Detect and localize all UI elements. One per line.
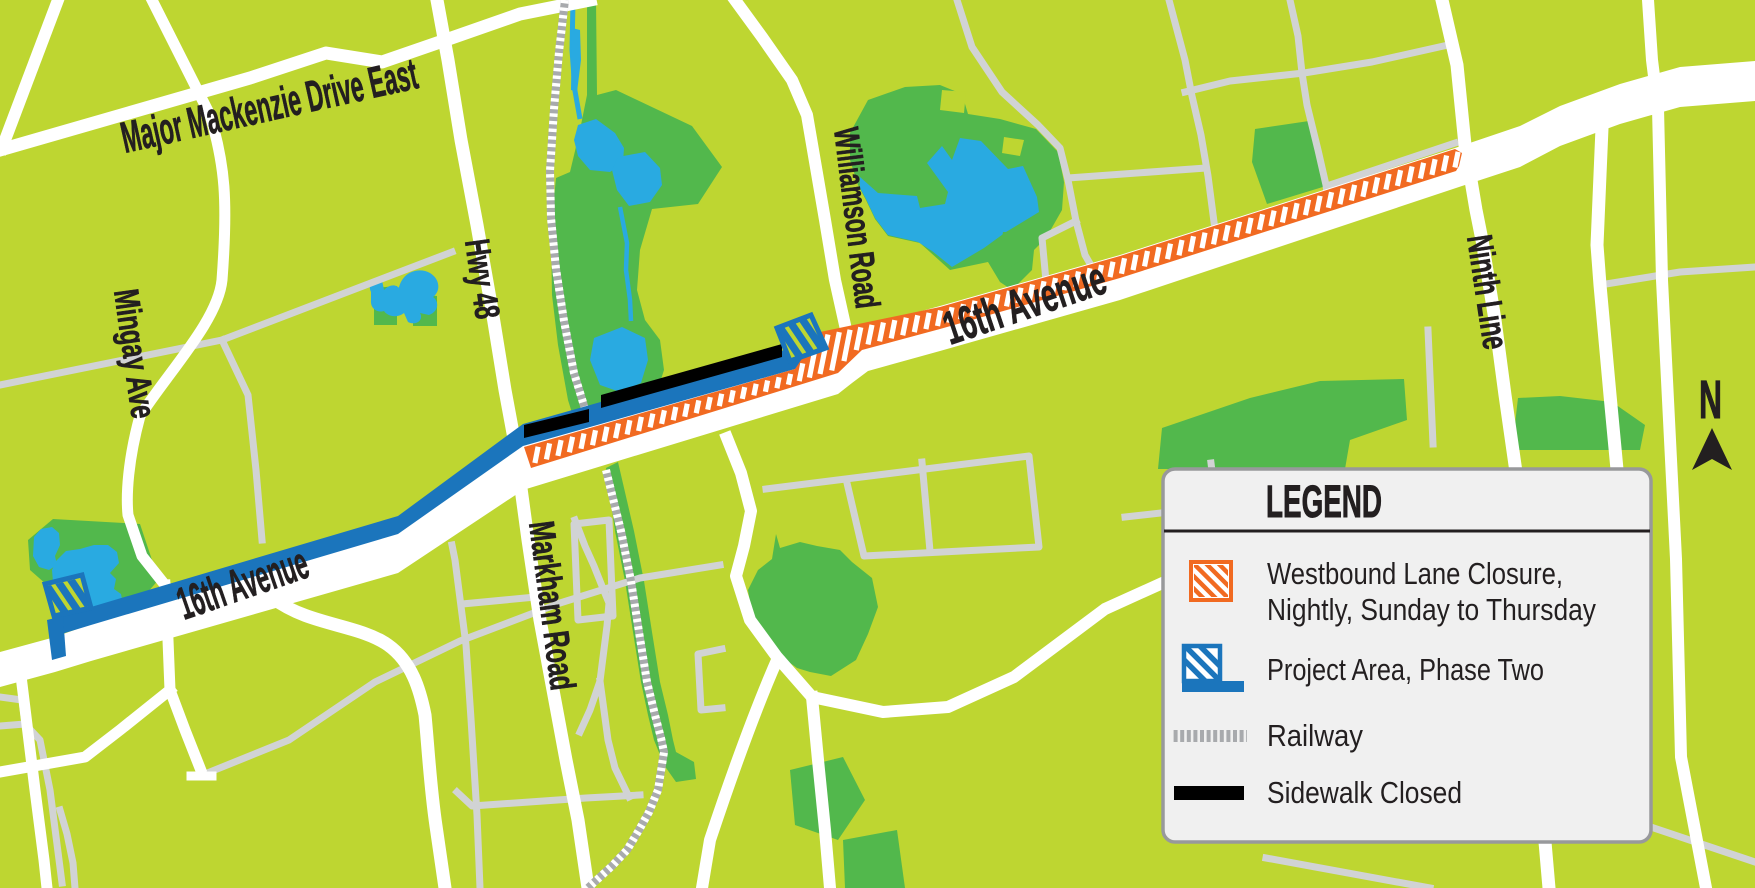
svg-text:Westbound Lane Closure,: Westbound Lane Closure, [1267, 556, 1563, 591]
svg-text:Sidewalk Closed: Sidewalk Closed [1267, 775, 1462, 810]
svg-text:Nightly, Sunday to Thursday: Nightly, Sunday to Thursday [1267, 592, 1596, 627]
svg-text:Project Area, Phase Two: Project Area, Phase Two [1267, 652, 1544, 687]
svg-text:Railway: Railway [1267, 718, 1363, 753]
svg-text:N: N [1699, 370, 1722, 430]
svg-text:LEGEND: LEGEND [1266, 476, 1382, 527]
